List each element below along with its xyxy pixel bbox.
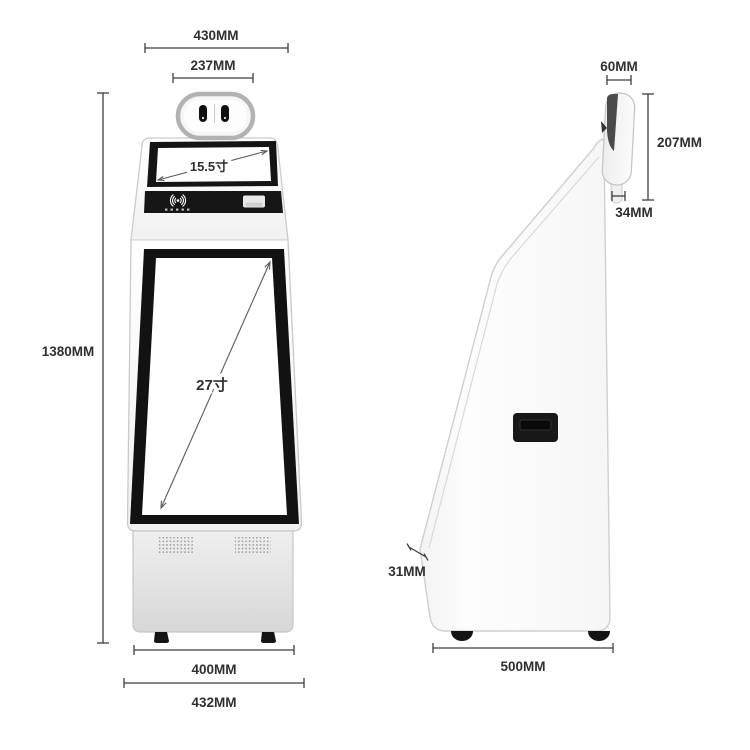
dim-total-height: 1380MM (42, 93, 109, 643)
dim-pod-mount-label: 34MM (615, 205, 653, 220)
speaker-vent-right (235, 537, 271, 553)
dim-base-width-outer: 432MM (124, 678, 304, 710)
dim-pod-height-label: 207MM (657, 135, 702, 150)
dim-camera-pod-width: 237MM (173, 58, 253, 83)
dim-pod-height: 207MM (642, 94, 702, 200)
dim-top-width-label: 430MM (193, 28, 238, 43)
main-screen-size-label: 27寸 (196, 376, 228, 394)
side-body (420, 139, 610, 631)
side-foot-front (451, 631, 473, 641)
main-screen: 27寸 (130, 249, 299, 524)
camera-pod (178, 94, 253, 138)
camera-lens-left (199, 105, 207, 122)
side-camera-pod (601, 92, 635, 203)
dim-pod-depth: 60MM (600, 59, 638, 85)
front-foot-left (154, 632, 169, 643)
dim-base-width-outer-label: 432MM (191, 695, 236, 710)
camera-lens-right (221, 105, 229, 122)
nfc-panel (144, 191, 283, 213)
dim-base-width-inner-label: 400MM (191, 662, 236, 677)
dim-pod-mount: 34MM (612, 191, 653, 220)
top-screen-size-label: 15.5寸 (190, 159, 228, 174)
dim-base-depth-label: 500MM (500, 659, 545, 674)
top-screen: 15.5寸 (147, 141, 278, 187)
dim-pod-depth-label: 60MM (600, 59, 638, 74)
side-foot-back (588, 631, 610, 641)
dim-base-depth: 500MM (433, 643, 613, 674)
front-foot-right (261, 632, 276, 643)
dim-base-width-inner: 400MM (134, 645, 294, 677)
speaker-vent-left (158, 537, 194, 553)
dim-total-height-label: 1380MM (42, 344, 95, 359)
receipt-slot (243, 196, 265, 208)
kiosk-spec-sheet: 430MM 237MM 1380MM (0, 0, 750, 750)
dim-camera-pod-width-label: 237MM (190, 58, 235, 73)
side-view-kiosk: 60MM 207MM 34MM 31MM 500MM (388, 59, 702, 674)
side-printer-slot (513, 413, 558, 442)
dim-top-width: 430MM (145, 28, 288, 53)
kiosk-dimension-diagram: 430MM 237MM 1380MM (0, 0, 750, 750)
front-view-kiosk: 430MM 237MM 1380MM (42, 28, 304, 710)
dim-screen-edge-label: 31MM (388, 564, 426, 579)
base-cabinet (133, 531, 293, 643)
